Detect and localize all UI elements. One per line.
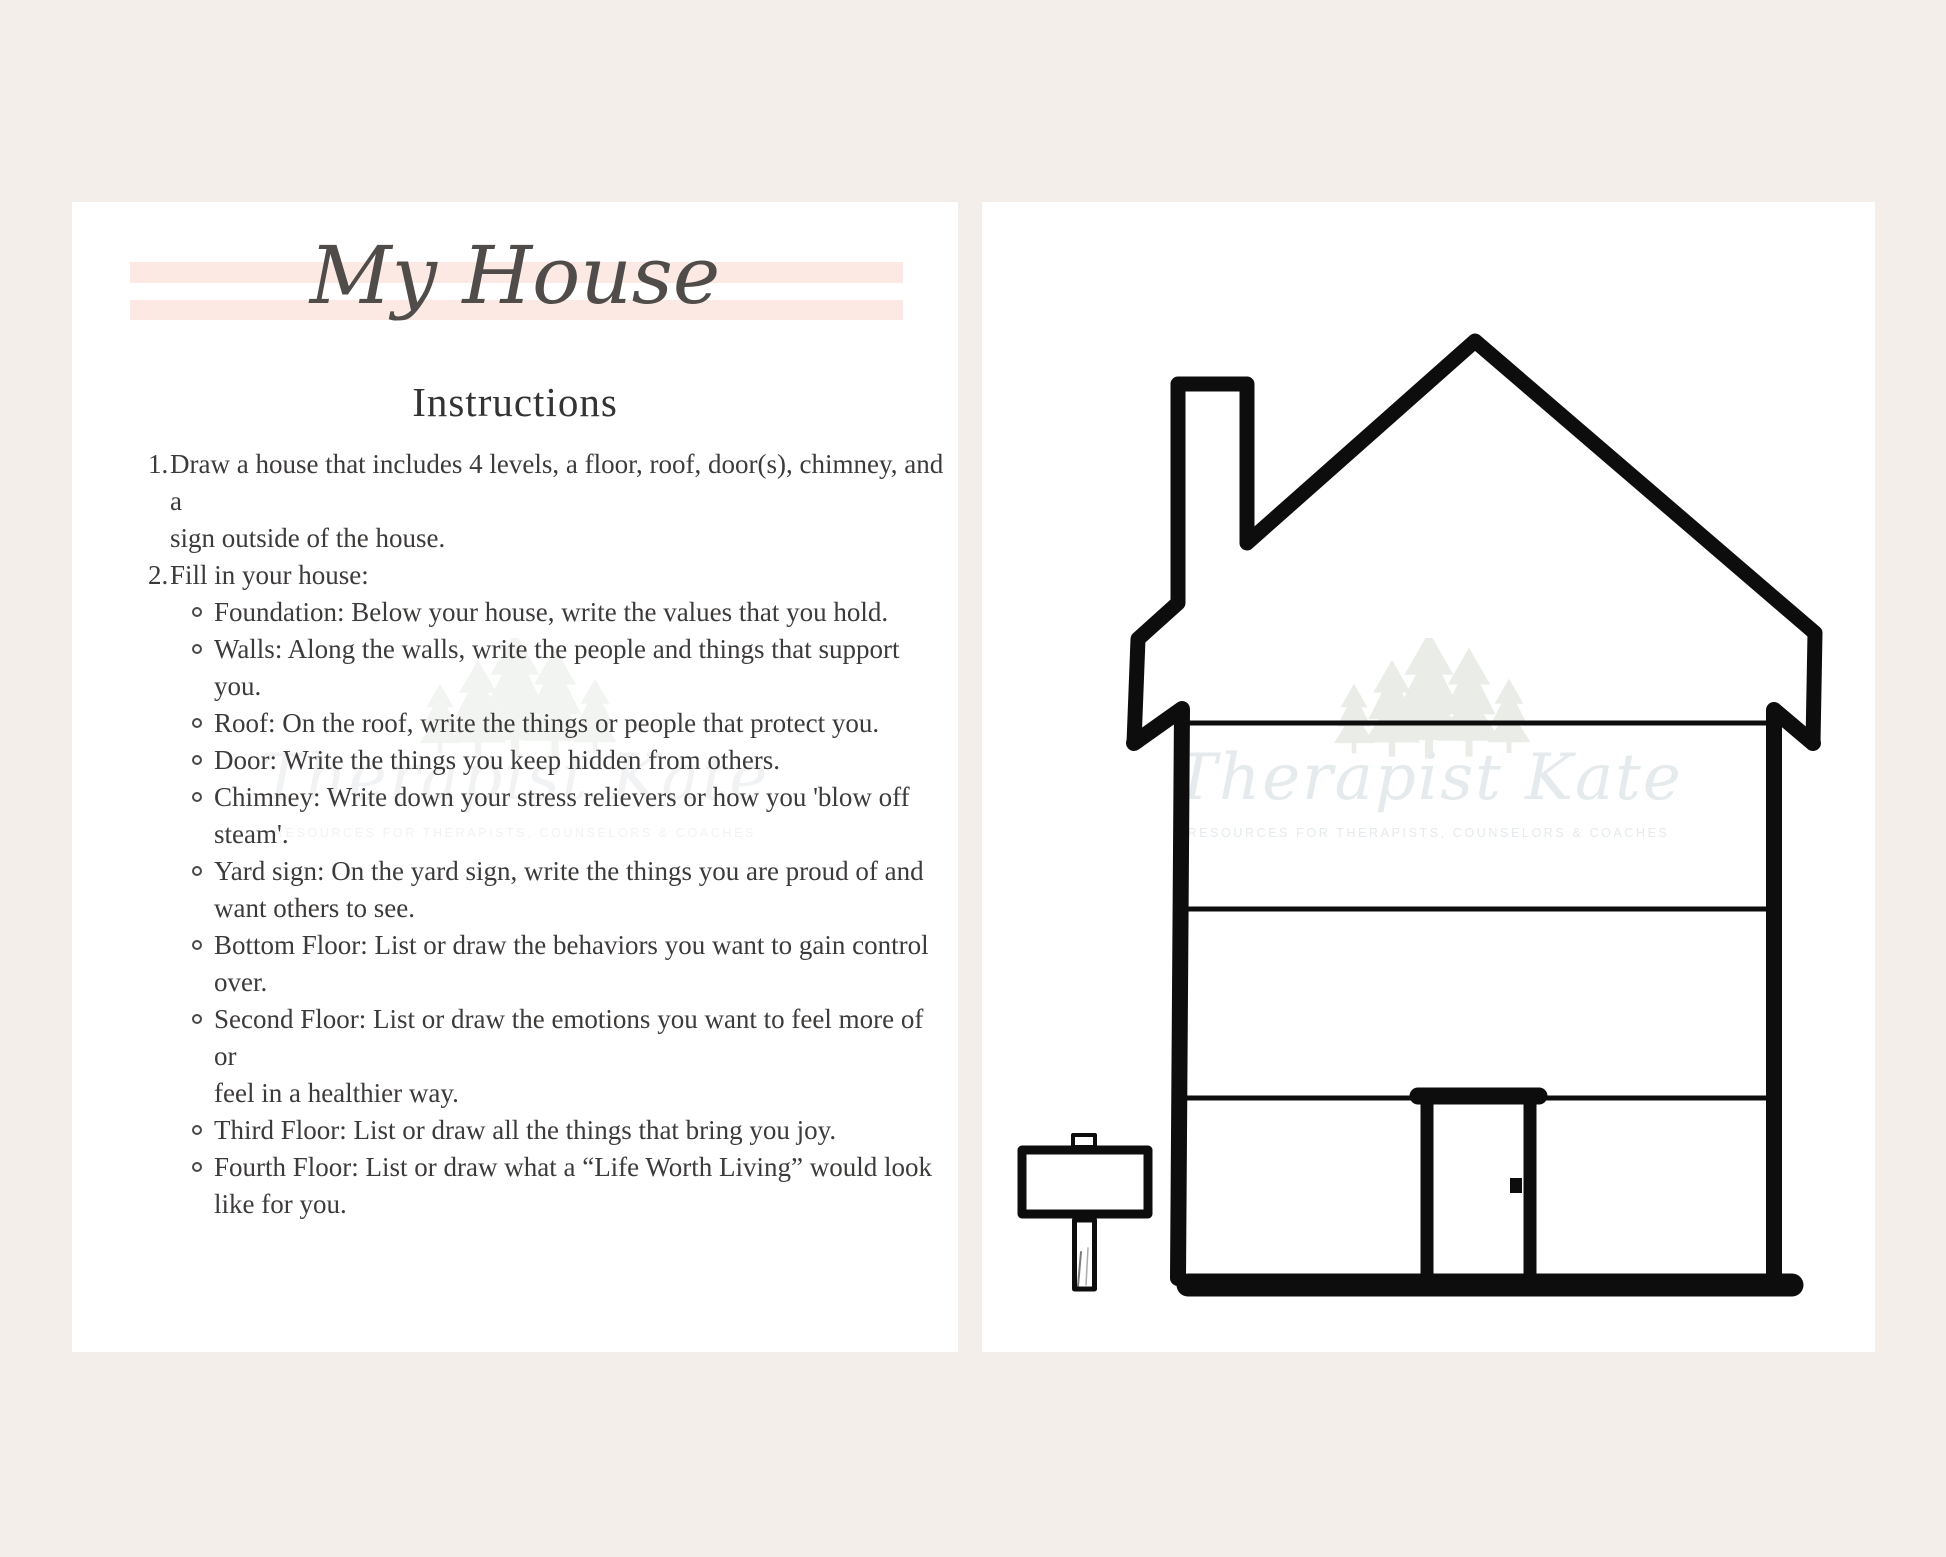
bullet-circle-icon <box>190 1149 214 1186</box>
bullet-circle-icon <box>190 631 214 668</box>
bullet-circle-icon <box>190 594 214 631</box>
bullet-circle-icon <box>190 1112 214 1149</box>
sub-instruction-item: Door: Write the things you keep hidden f… <box>190 742 944 779</box>
sub-instruction-text: Foundation: Below your house, write the … <box>214 594 944 631</box>
bullet-circle-icon <box>190 742 214 779</box>
instruction-list: 1. Draw a house that includes 4 levels, … <box>148 446 944 1223</box>
roof-and-chimney-outline <box>1134 341 1815 743</box>
list-number: 1. <box>148 446 170 483</box>
sub-instruction-text: Yard sign: On the yard sign, write the t… <box>214 853 944 927</box>
bullet-circle-icon <box>190 779 214 816</box>
sub-instruction-item: Yard sign: On the yard sign, write the t… <box>190 853 944 927</box>
sub-instruction-text: Second Floor: List or draw the emotions … <box>214 1001 944 1112</box>
yard-sign <box>1022 1135 1148 1289</box>
bullet-circle-icon <box>190 853 214 890</box>
bullet-circle-icon <box>190 927 214 964</box>
door-knob <box>1510 1178 1522 1193</box>
instruction-text: Fill in your house: <box>170 557 944 594</box>
sign-board <box>1022 1150 1148 1214</box>
instruction-item: 2. Fill in your house: <box>148 557 944 594</box>
sign-tab <box>1073 1135 1095 1147</box>
sub-instruction-text: Chimney: Write down your stress reliever… <box>214 779 944 853</box>
bullet-circle-icon <box>190 1001 214 1038</box>
sub-instruction-item: Second Floor: List or draw the emotions … <box>190 1001 944 1112</box>
sign-post <box>1075 1220 1095 1289</box>
page-title: My House <box>72 224 958 328</box>
worksheet-canvas: My House Instructions Therapist Kate R <box>0 0 1946 1557</box>
sub-instruction-text: Fourth Floor: List or draw what a “Life … <box>214 1149 944 1223</box>
sub-instruction-item: Roof: On the roof, write the things or p… <box>190 705 944 742</box>
bullet-circle-icon <box>190 705 214 742</box>
sub-instruction-text: Roof: On the roof, write the things or p… <box>214 705 944 742</box>
instructions-page: My House Instructions Therapist Kate R <box>72 202 958 1352</box>
instructions-heading: Instructions <box>72 378 958 426</box>
sub-instruction-item: Third Floor: List or draw all the things… <box>190 1112 944 1149</box>
instruction-item: 1. Draw a house that includes 4 levels, … <box>148 446 944 557</box>
house-drawing <box>982 202 1875 1352</box>
sub-instruction-item: Walls: Along the walls, write the people… <box>190 631 944 705</box>
instruction-text: Draw a house that includes 4 levels, a f… <box>170 446 944 557</box>
sub-instruction-item: Foundation: Below your house, write the … <box>190 594 944 631</box>
right-wall <box>1774 710 1813 1278</box>
sub-instruction-item: Bottom Floor: List or draw the behaviors… <box>190 927 944 1001</box>
list-number: 2. <box>148 557 170 594</box>
sub-instruction-text: Bottom Floor: List or draw the behaviors… <box>214 927 944 1001</box>
sub-instruction-text: Walls: Along the walls, write the people… <box>214 631 944 705</box>
house-page: Therapist Kate RESOURCES FOR THERAPISTS,… <box>982 202 1875 1352</box>
sub-instruction-item: Fourth Floor: List or draw what a “Life … <box>190 1149 944 1223</box>
sub-instruction-text: Third Floor: List or draw all the things… <box>214 1112 944 1149</box>
sub-instruction-item: Chimney: Write down your stress reliever… <box>190 779 944 853</box>
sub-instruction-text: Door: Write the things you keep hidden f… <box>214 742 944 779</box>
